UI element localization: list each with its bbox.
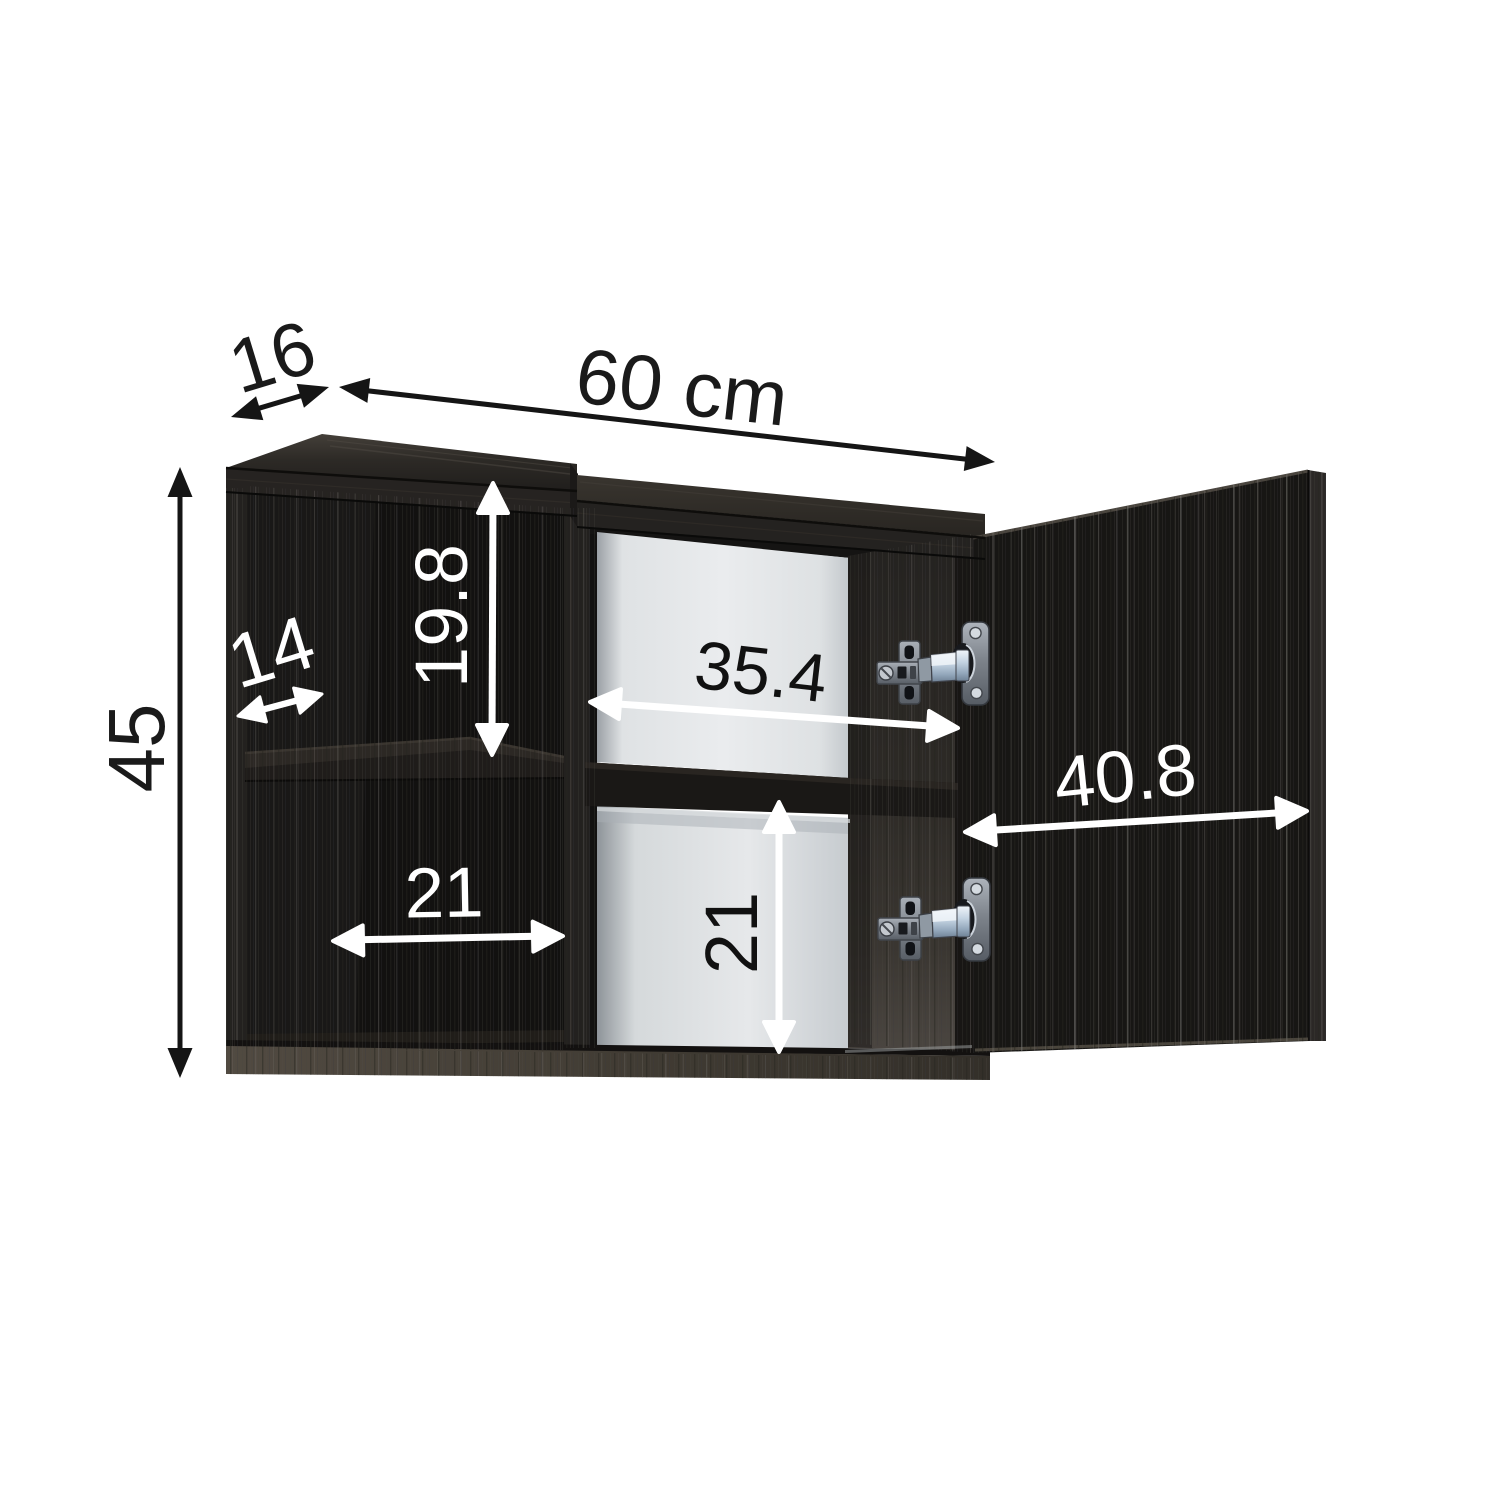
svg-text:19.8: 19.8 — [400, 544, 483, 688]
svg-text:35.4: 35.4 — [691, 627, 831, 717]
svg-text:45: 45 — [92, 704, 181, 793]
svg-text:21: 21 — [404, 853, 484, 933]
svg-text:40.8: 40.8 — [1050, 729, 1200, 824]
svg-text:21: 21 — [690, 892, 773, 974]
